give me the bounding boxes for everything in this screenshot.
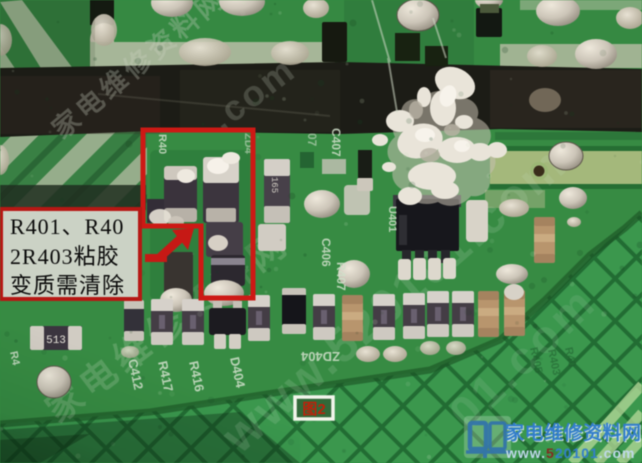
svg-text:165: 165	[269, 177, 279, 193]
svg-text:ZD404: ZD404	[300, 349, 340, 364]
svg-text:R401、R40: R401、R40	[10, 214, 124, 239]
svg-text:图2: 图2	[302, 401, 325, 418]
svg-text:07: 07	[305, 133, 319, 147]
svg-text:C407: C407	[329, 128, 343, 157]
svg-text:变质需清除: 变质需清除	[10, 273, 125, 298]
svg-text:2R403粘胶: 2R403粘胶	[10, 244, 120, 269]
svg-text:家电维修资料网: 家电维修资料网	[505, 421, 642, 444]
svg-text:C406: C406	[319, 238, 333, 267]
svg-text:www.520101.com: www.520101.com	[505, 445, 635, 461]
svg-text:U401: U401	[386, 206, 398, 232]
svg-text:R407: R407	[334, 262, 348, 291]
svg-text:R40: R40	[156, 134, 168, 154]
